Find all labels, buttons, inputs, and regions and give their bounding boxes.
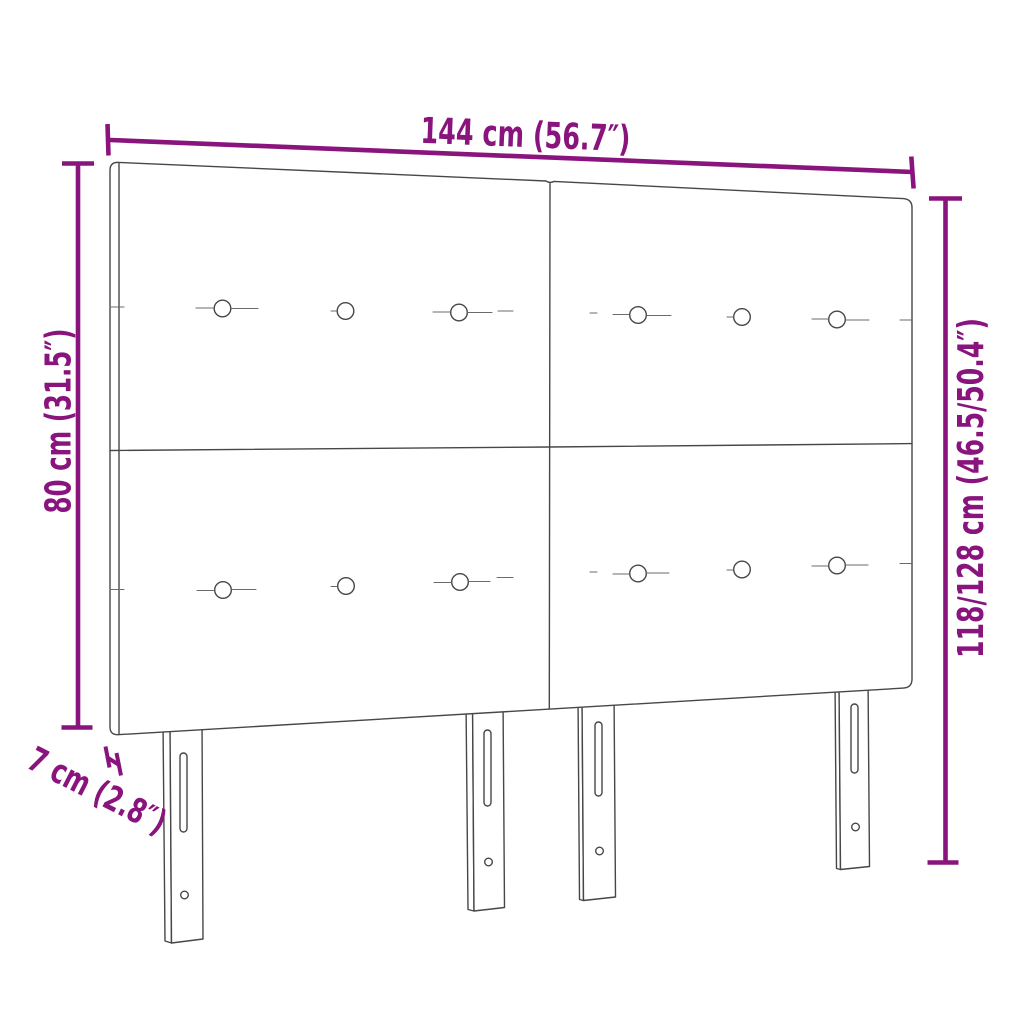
dimension-width-end-tick [108,124,109,156]
dimension-panel-height: 80 cm (31.5″) [39,164,95,728]
dimension-total-height: 118/128 cm (46.5/50.4″) [928,199,993,863]
headboard-dimension-diagram: 144 cm (56.7″) 80 cm (31.5″) 118/128 cm … [0,0,1024,1024]
tufting-button [338,578,355,595]
headboard-front-face [110,162,912,734]
dimension-panel-height-label: 80 cm (31.5″) [39,329,80,514]
tufting-button [337,303,354,320]
center-vertical-seam [549,184,550,709]
dimension-width-label: 144 cm (56.7″) [420,111,631,160]
tufting-button [829,311,846,328]
leg-3 [578,691,616,901]
tufting-button [630,307,647,324]
dimension-total-height-label: 118/128 cm (46.5/50.4″) [951,318,992,658]
dimension-thickness-label: 7 cm (2.8″) [21,739,173,843]
tufting-button [214,300,231,317]
tufting-button [734,561,751,578]
leg-1 [163,716,203,943]
dimension-width-end-tick [911,157,913,189]
diagram-stage: 144 cm (56.7″) 80 cm (31.5″) 118/128 cm … [0,0,1024,1024]
tufting-button [630,565,647,582]
tufting-button [829,557,846,574]
dimension-thickness: 7 cm (2.8″) [21,739,173,843]
tufting-button [734,309,751,326]
leg-front-face [473,696,505,911]
headboard-drawing [110,162,912,943]
tufting-button [452,574,469,591]
tufting-button [215,582,232,599]
leg-2 [466,696,505,911]
tufting-button [451,304,468,321]
leg-4 [835,676,870,870]
